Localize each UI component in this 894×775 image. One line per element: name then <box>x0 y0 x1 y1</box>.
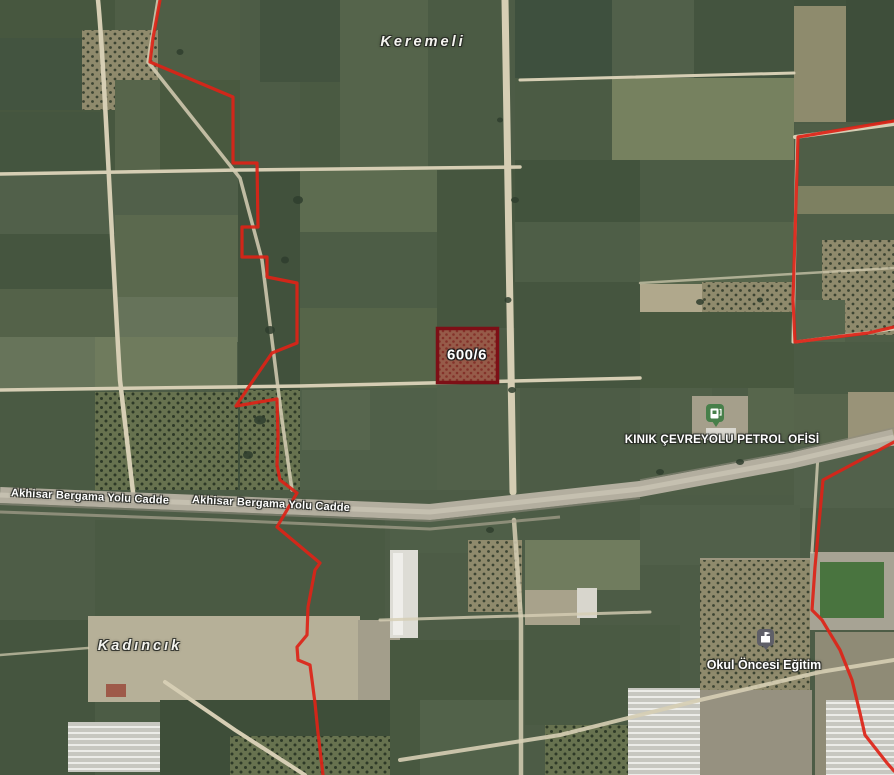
satellite-map-canvas[interactable]: Keremeli Kadıncık KINIK ÇEVREYOLU PETROL… <box>0 0 894 775</box>
satellite-imagery <box>0 0 894 775</box>
parcel-fill <box>438 329 498 383</box>
highlighted-parcel[interactable] <box>438 329 498 383</box>
